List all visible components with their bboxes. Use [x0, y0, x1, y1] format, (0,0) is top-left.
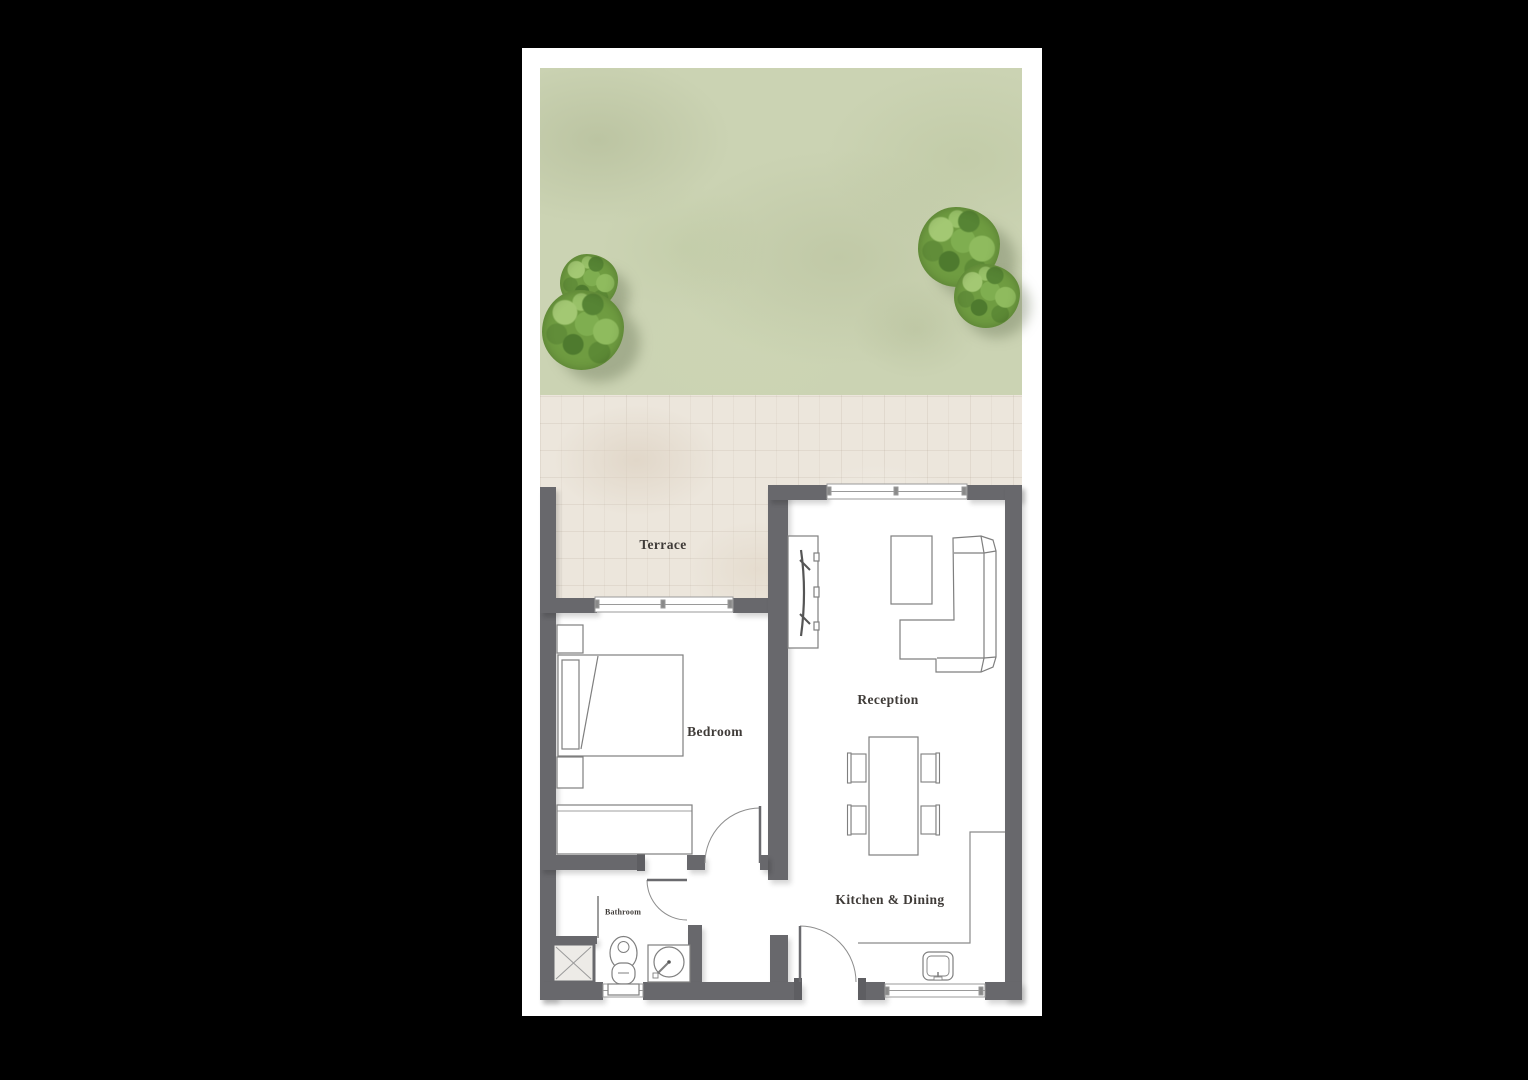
wall-segment [687, 855, 705, 870]
door-jamb [794, 978, 802, 1000]
wall-segment [540, 487, 556, 1000]
floorplan-card: Terrace Bedroom Reception Kitchen & Dini… [522, 48, 1042, 1016]
wall-segment [643, 982, 802, 1000]
wall-segment [768, 485, 788, 880]
reception-label: Reception [857, 692, 918, 708]
wall-segment [768, 485, 827, 500]
wall-segment [770, 935, 788, 982]
wall-segment [540, 982, 603, 1000]
page-background: { "floorplan": { "rooms": { "terrace": "… [0, 0, 1528, 1080]
kitchen-dining-label: Kitchen & Dining [835, 892, 944, 908]
wall-segment [540, 855, 645, 870]
bathroom-label: Bathroom [605, 908, 641, 917]
wall-segment [688, 925, 702, 982]
wall-segment [540, 598, 597, 613]
wall-segment [552, 936, 597, 944]
door-jamb [637, 854, 645, 871]
wall-segment [985, 982, 1022, 1000]
bedroom-label: Bedroom [687, 724, 743, 740]
wall-segment [1005, 485, 1022, 1000]
terrace-label: Terrace [639, 537, 686, 553]
wall-segment [760, 855, 768, 870]
wall-segment [733, 598, 768, 613]
reception-kitchen-floor [768, 485, 1022, 1000]
door-jamb [858, 978, 866, 1000]
